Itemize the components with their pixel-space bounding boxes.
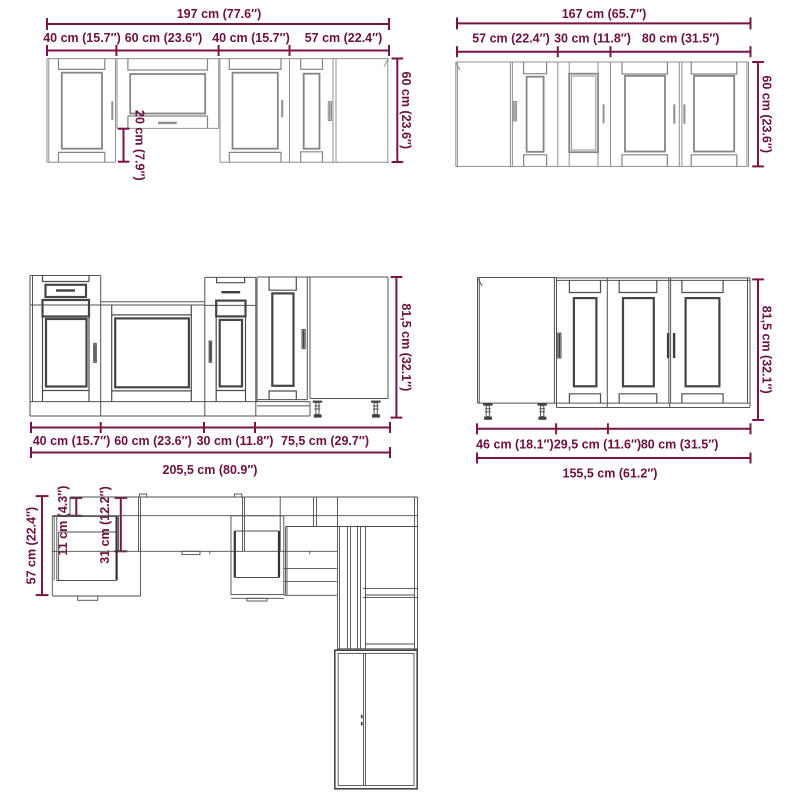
svg-text:81,5 cm (32.1″): 81,5 cm (32.1″) [760, 306, 774, 394]
svg-text:75,5 cm (29.7″): 75,5 cm (29.7″) [281, 434, 369, 448]
svg-text:60 cm (23.6″): 60 cm (23.6″) [114, 434, 192, 448]
svg-text:57 cm (22.4″): 57 cm (22.4″) [25, 507, 39, 585]
svg-text:29,5 cm (11.6″): 29,5 cm (11.6″) [554, 437, 641, 451]
svg-text:167 cm (65.7″): 167 cm (65.7″) [562, 7, 647, 21]
svg-text:60 cm (23.6″): 60 cm (23.6″) [760, 75, 774, 153]
svg-text:30 cm (11.8″): 30 cm (11.8″) [197, 434, 274, 448]
svg-text:57 cm (22.4″): 57 cm (22.4″) [305, 31, 383, 45]
svg-text:11 cm (4.3″): 11 cm (4.3″) [56, 486, 70, 556]
svg-text:197 cm (77.6″): 197 cm (77.6″) [177, 7, 262, 21]
svg-text:20 cm (7.9″): 20 cm (7.9″) [133, 110, 147, 181]
svg-text:30 cm (11.8″): 30 cm (11.8″) [554, 32, 631, 46]
svg-text:40 cm (15.7″): 40 cm (15.7″) [43, 31, 121, 45]
svg-text:57 cm (22.4″): 57 cm (22.4″) [472, 32, 550, 46]
svg-text:80 cm (31.5″): 80 cm (31.5″) [641, 437, 719, 451]
svg-text:46 cm (18.1″): 46 cm (18.1″) [476, 437, 554, 451]
svg-text:40 cm (15.7″): 40 cm (15.7″) [33, 434, 111, 448]
svg-text:155,5 cm (61.2″): 155,5 cm (61.2″) [563, 467, 658, 481]
svg-text:205,5 cm (80.9″): 205,5 cm (80.9″) [163, 463, 258, 477]
svg-text:80 cm (31.5″): 80 cm (31.5″) [642, 32, 720, 46]
svg-text:31 cm (12.2″): 31 cm (12.2″) [98, 486, 112, 564]
svg-text:60 cm (23.6″): 60 cm (23.6″) [399, 72, 413, 150]
svg-text:81,5 cm (32.1″): 81,5 cm (32.1″) [399, 303, 413, 391]
svg-text:60 cm (23.6″): 60 cm (23.6″) [125, 31, 203, 45]
svg-text:40 cm (15.7″): 40 cm (15.7″) [212, 31, 290, 45]
